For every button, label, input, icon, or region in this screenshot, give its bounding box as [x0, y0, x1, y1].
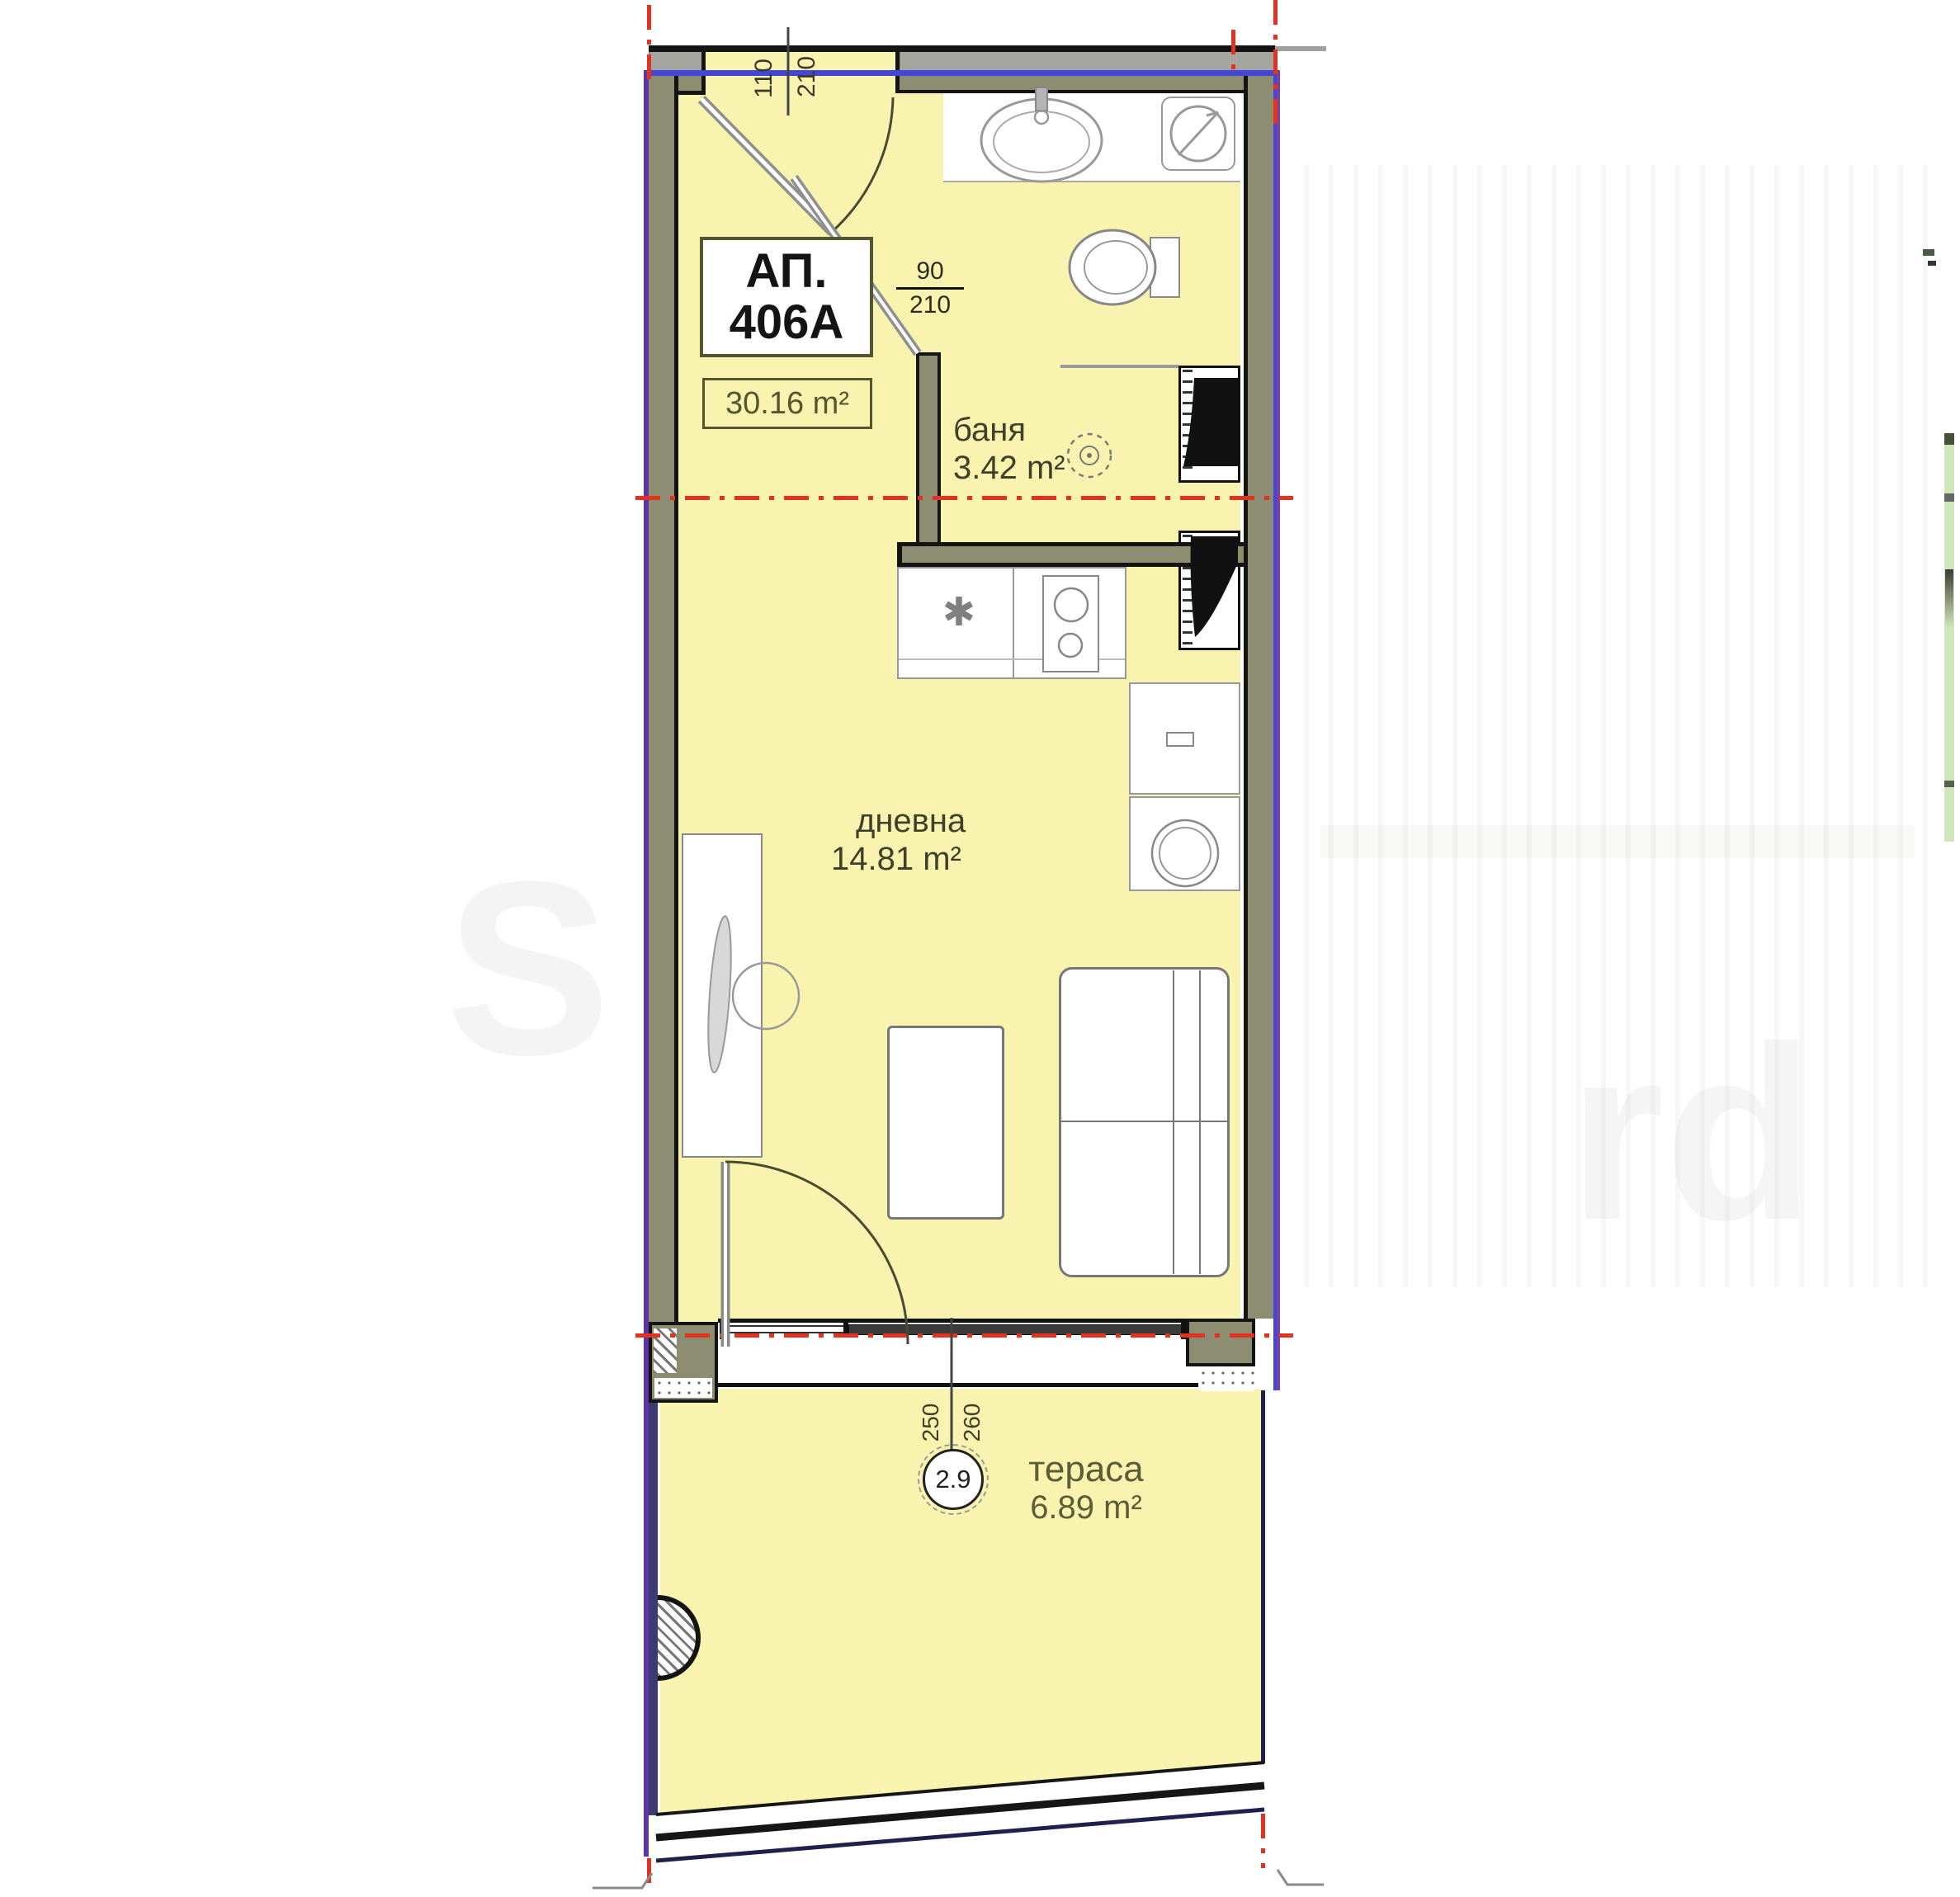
corner-mark-bottom-left	[593, 1873, 652, 1888]
bathroom-door-width: 90	[896, 257, 964, 285]
entry-door-swing-arc	[832, 97, 893, 232]
level-mark-circle: 2.9	[923, 1449, 984, 1510]
desk-chair-icon	[733, 963, 799, 1029]
terrace-edge-line	[656, 1763, 1264, 1814]
burner-large	[1055, 588, 1088, 621]
entry-door-leaf-core	[701, 99, 832, 232]
kitchen-sink-bowl-inner	[1159, 828, 1211, 879]
apartment-id-prefix: АП.	[746, 246, 828, 297]
plan-vector-overlay	[0, 0, 1960, 1897]
kitchen-sink-bowl	[1152, 820, 1218, 886]
apartment-area-value: 30.16 m²	[725, 386, 849, 422]
entry-door-width: 110	[750, 54, 778, 103]
terrace-label: тераса 6.89 m²	[1004, 1451, 1169, 1527]
living-room-name: дневна	[831, 802, 1013, 840]
terrace-door-width: 250	[918, 1396, 944, 1449]
shaft-wedge-bathroom	[1183, 378, 1238, 466]
bathroom-door-dimension: 90 210	[896, 257, 964, 319]
washing-machine-mark	[1178, 112, 1218, 155]
bathroom-label: баня 3.42 m²	[953, 411, 1135, 487]
apartment-area-box: 30.16 m²	[702, 378, 872, 429]
apartment-id-number: 406А	[730, 297, 844, 348]
terrace-door-height: 260	[959, 1396, 985, 1449]
terrace-railing-band	[656, 1786, 1264, 1838]
kitchen-star-icon: ✱	[934, 589, 984, 635]
terrace-railing-navy	[656, 1810, 1264, 1861]
entry-door-height: 210	[793, 52, 821, 101]
terrace-area: 6.89 m²	[1004, 1489, 1169, 1527]
level-mark-value: 2.9	[935, 1465, 971, 1494]
corner-mark-bottom-right	[1278, 1870, 1324, 1885]
balcony-door-swing-arc	[725, 1162, 908, 1344]
bathroom-door-height: 210	[896, 291, 964, 319]
apartment-id-box: АП. 406А	[700, 237, 873, 357]
bathroom-area: 3.42 m²	[953, 449, 1135, 487]
living-room-label: дневна 14.81 m²	[831, 802, 1013, 878]
desk-object	[704, 915, 734, 1073]
terrace-name: тераса	[1004, 1451, 1169, 1489]
shaft-wedge-kitchen	[1191, 536, 1238, 637]
bathroom-name: баня	[953, 411, 1135, 449]
bath-sink-faucet	[1036, 87, 1047, 111]
floor-plan: S rd	[0, 0, 1960, 1897]
dimension-fraction-line	[896, 287, 964, 290]
living-room-area: 14.81 m²	[831, 840, 1013, 878]
burner-small	[1059, 634, 1082, 657]
